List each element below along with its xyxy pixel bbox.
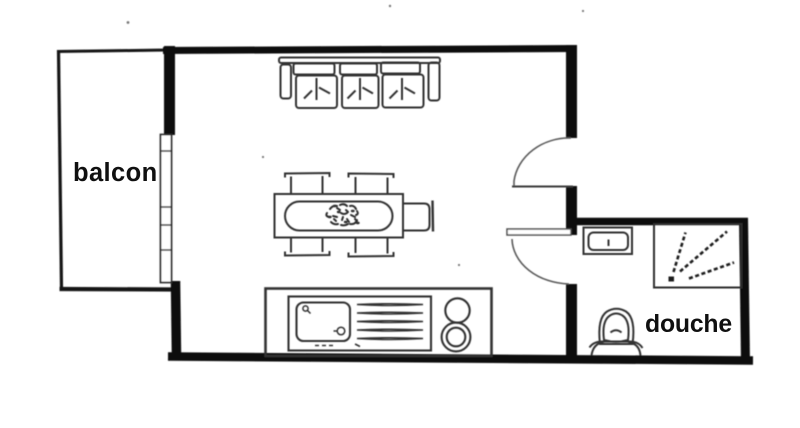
svg-text:douche: douche — [645, 311, 732, 338]
svg-text:balcon: balcon — [73, 159, 158, 187]
